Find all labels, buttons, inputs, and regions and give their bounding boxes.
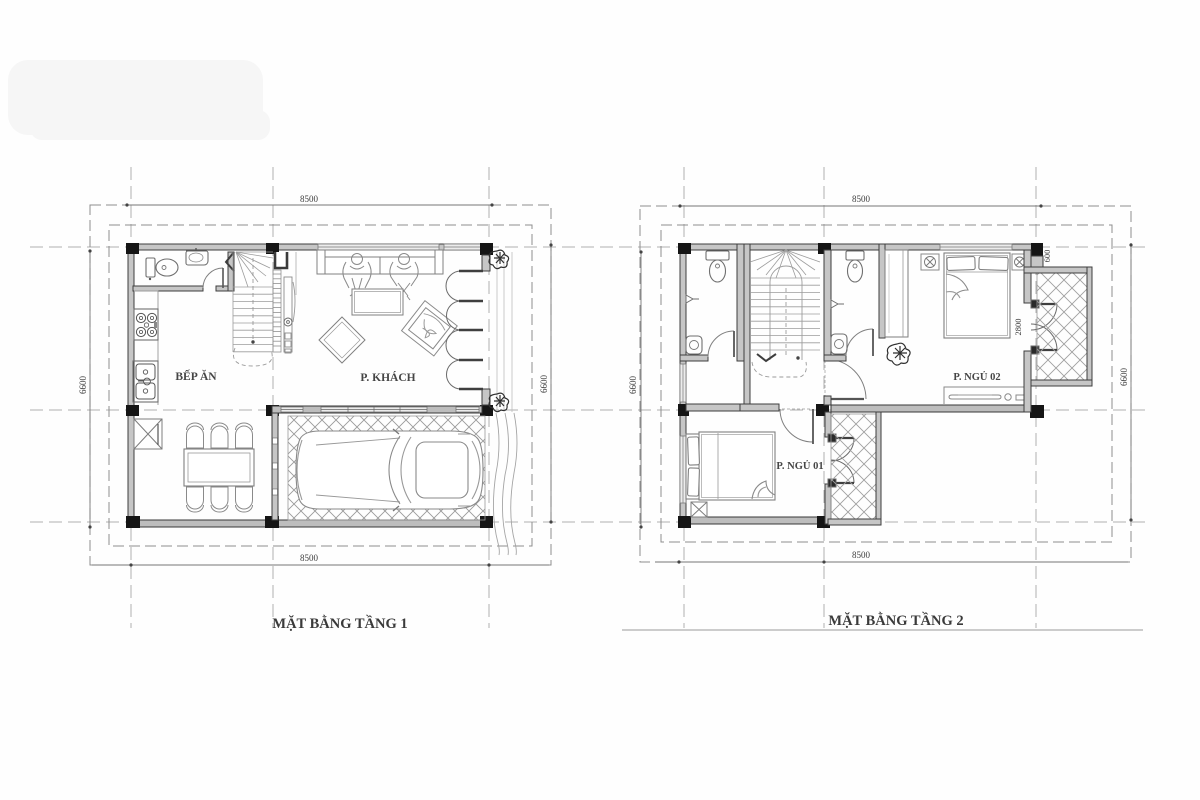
svg-text:8500: 8500 (852, 194, 871, 204)
svg-text:6600: 6600 (78, 376, 88, 395)
svg-text:600: 600 (1042, 250, 1052, 263)
svg-text:P. NGỦ 01: P. NGỦ 01 (776, 460, 823, 472)
svg-text:MẶT BẰNG TẦNG 2: MẶT BẰNG TẦNG 2 (828, 612, 963, 629)
svg-text:MẶT BẰNG TẦNG 1: MẶT BẰNG TẦNG 1 (272, 615, 407, 632)
svg-text:P. KHÁCH: P. KHÁCH (360, 370, 415, 384)
svg-text:8500: 8500 (300, 553, 319, 563)
svg-text:8500: 8500 (300, 194, 319, 204)
svg-text:6600: 6600 (539, 375, 549, 394)
svg-text:2800: 2800 (1013, 319, 1023, 336)
svg-text:P. NGỦ 02: P. NGỦ 02 (953, 371, 1000, 383)
svg-text:BẾP ĂN: BẾP ĂN (175, 368, 217, 383)
svg-text:6600: 6600 (1119, 368, 1129, 387)
svg-text:6600: 6600 (628, 376, 638, 395)
svg-text:8500: 8500 (852, 550, 871, 560)
